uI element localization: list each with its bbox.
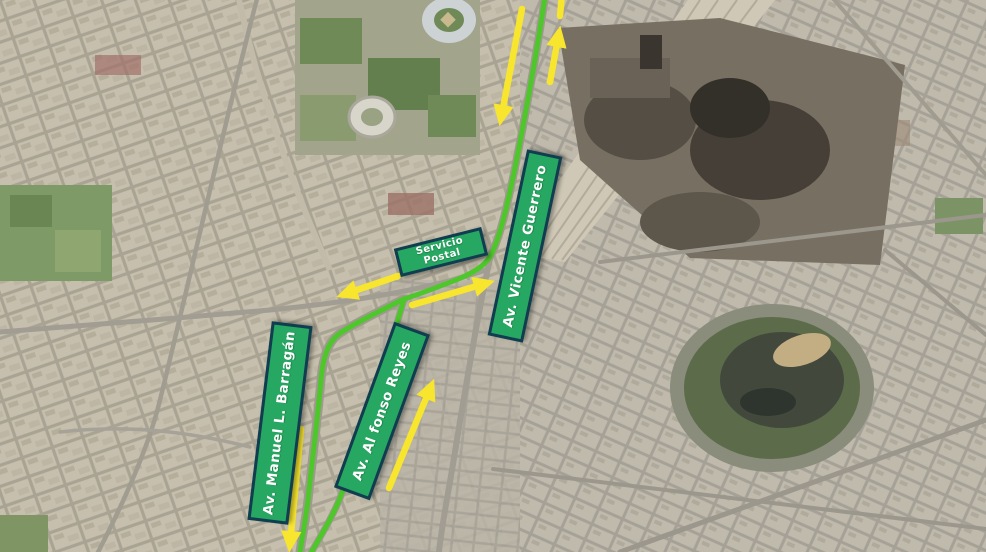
route-overlay [0,0,986,552]
satellite-map-screenshot: Servicio Postal Av. Vicente Guerrero Av.… [0,0,986,552]
northbound-arrow-top-icon [550,44,557,82]
southbound-arrow-top-icon [503,9,522,108]
northbound-arrow-top-stub [560,0,562,16]
westbound-arrow-center-icon [354,276,398,291]
